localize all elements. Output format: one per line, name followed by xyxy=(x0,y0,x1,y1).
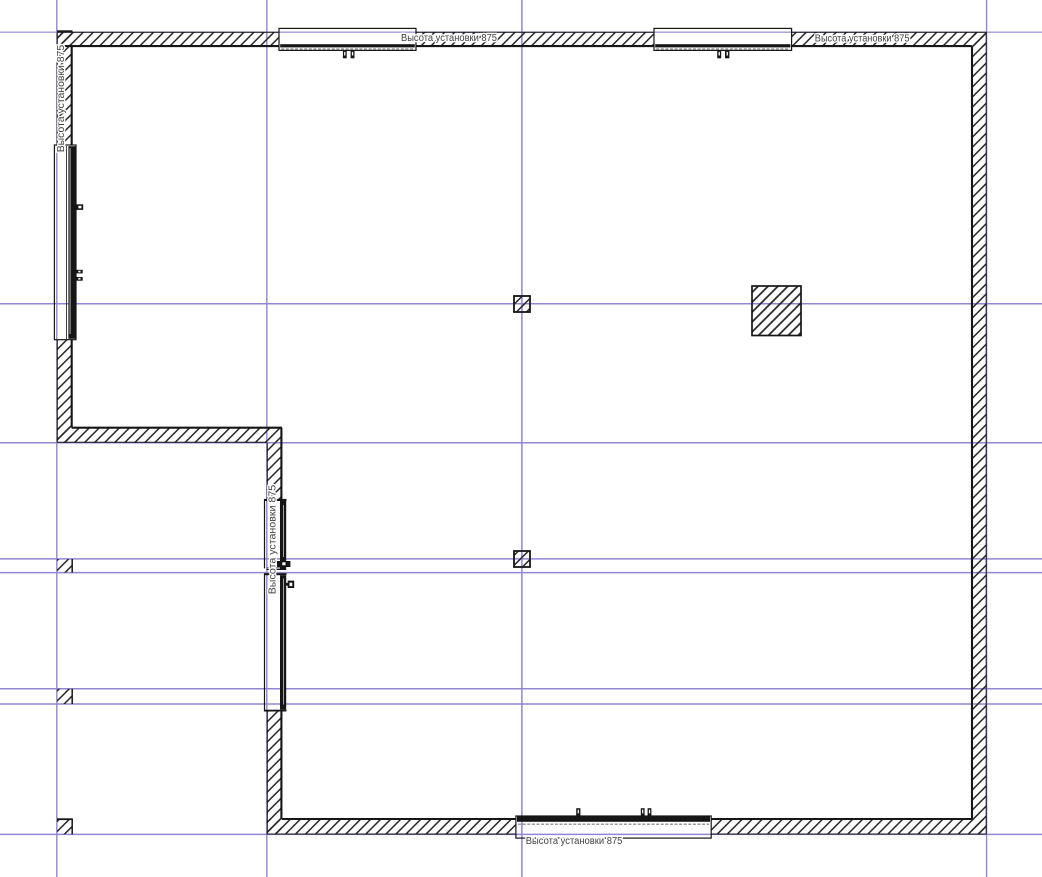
svg-text:Высота установки 875: Высота установки 875 xyxy=(56,44,67,152)
svg-text:Высота установки 875: Высота установки 875 xyxy=(526,836,623,847)
svg-text:Высота установки 875: Высота установки 875 xyxy=(401,33,497,44)
svg-text:Высота установки 875: Высота установки 875 xyxy=(268,484,279,594)
svg-text:Высота установки 875: Высота установки 875 xyxy=(815,34,910,45)
